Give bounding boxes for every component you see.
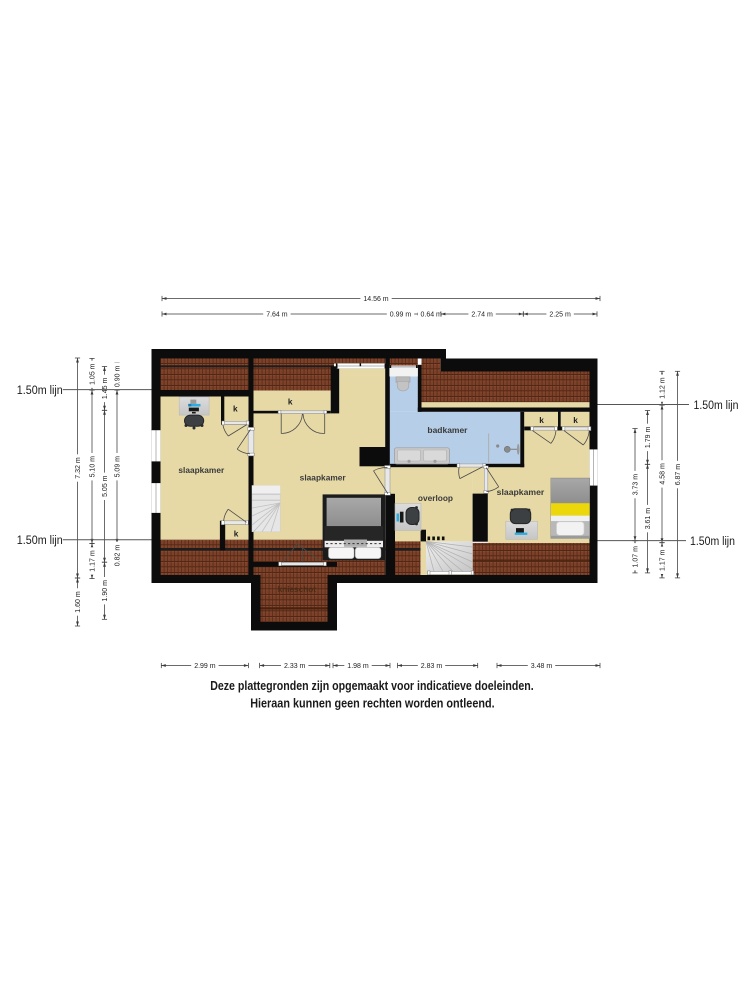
svg-text:2.33 m: 2.33 m [284, 663, 306, 670]
svg-text:2.83 m: 2.83 m [421, 663, 443, 670]
svg-text:3.73 m: 3.73 m [633, 474, 640, 496]
svg-text:1.07 m: 1.07 m [633, 546, 640, 568]
svg-text:7.32 m: 7.32 m [75, 457, 82, 479]
svg-text:k: k [573, 415, 578, 425]
svg-text:4.58 m: 4.58 m [660, 463, 667, 485]
svg-text:5.10 m: 5.10 m [90, 456, 97, 478]
svg-text:1.17 m: 1.17 m [90, 550, 97, 572]
svg-text:k: k [539, 415, 544, 425]
svg-text:7.64 m: 7.64 m [266, 312, 288, 319]
svg-text:6.87 m: 6.87 m [675, 464, 682, 486]
svg-text:14.56 m: 14.56 m [363, 296, 388, 303]
svg-text:5.09 m: 5.09 m [115, 456, 122, 478]
svg-text:2.74 m: 2.74 m [471, 312, 493, 319]
svg-text:1.50m lijn: 1.50m lijn [694, 398, 739, 412]
svg-text:1.17 m: 1.17 m [660, 549, 667, 571]
svg-text:1.45 m: 1.45 m [102, 378, 109, 400]
svg-text:1.60 m: 1.60 m [75, 591, 82, 613]
svg-text:0.90 m: 0.90 m [115, 366, 122, 388]
svg-text:slaapkamer: slaapkamer [178, 465, 225, 475]
svg-text:Hieraan kunnen geen rechten wo: Hieraan kunnen geen rechten worden ontle… [250, 695, 494, 710]
svg-text:k: k [288, 396, 293, 406]
svg-text:badkamer: badkamer [427, 425, 468, 435]
svg-text:1.90 m: 1.90 m [102, 580, 109, 602]
svg-text:2.25 m: 2.25 m [549, 312, 571, 319]
svg-text:1.50m lijn: 1.50m lijn [17, 383, 63, 397]
svg-text:1.05 m: 1.05 m [90, 363, 97, 385]
svg-text:3.61 m: 3.61 m [645, 508, 652, 530]
svg-text:1.98 m: 1.98 m [347, 663, 369, 670]
svg-text:1.50m lijn: 1.50m lijn [690, 534, 735, 548]
svg-text:5.05 m: 5.05 m [102, 475, 109, 497]
svg-text:0.99 m: 0.99 m [390, 312, 412, 319]
svg-text:slaapkamer: slaapkamer [300, 473, 347, 483]
svg-text:1.50m lijn: 1.50m lijn [17, 533, 63, 547]
svg-text:Deze plattegronden zijn opgema: Deze plattegronden zijn opgemaakt voor i… [210, 678, 534, 693]
svg-text:overloop: overloop [418, 493, 453, 503]
svg-text:1.79 m: 1.79 m [645, 427, 652, 449]
svg-text:0.64 m: 0.64 m [420, 312, 442, 319]
svg-text:3.48 m: 3.48 m [531, 663, 553, 670]
svg-text:slaapkamer: slaapkamer [497, 487, 545, 497]
svg-text:k: k [234, 529, 239, 539]
svg-text:0.82 m: 0.82 m [115, 545, 122, 567]
svg-text:knieschot: knieschot [278, 584, 317, 594]
svg-text:2.99 m: 2.99 m [194, 663, 216, 670]
svg-text:k: k [233, 404, 238, 414]
svg-text:1.12 m: 1.12 m [660, 377, 667, 399]
